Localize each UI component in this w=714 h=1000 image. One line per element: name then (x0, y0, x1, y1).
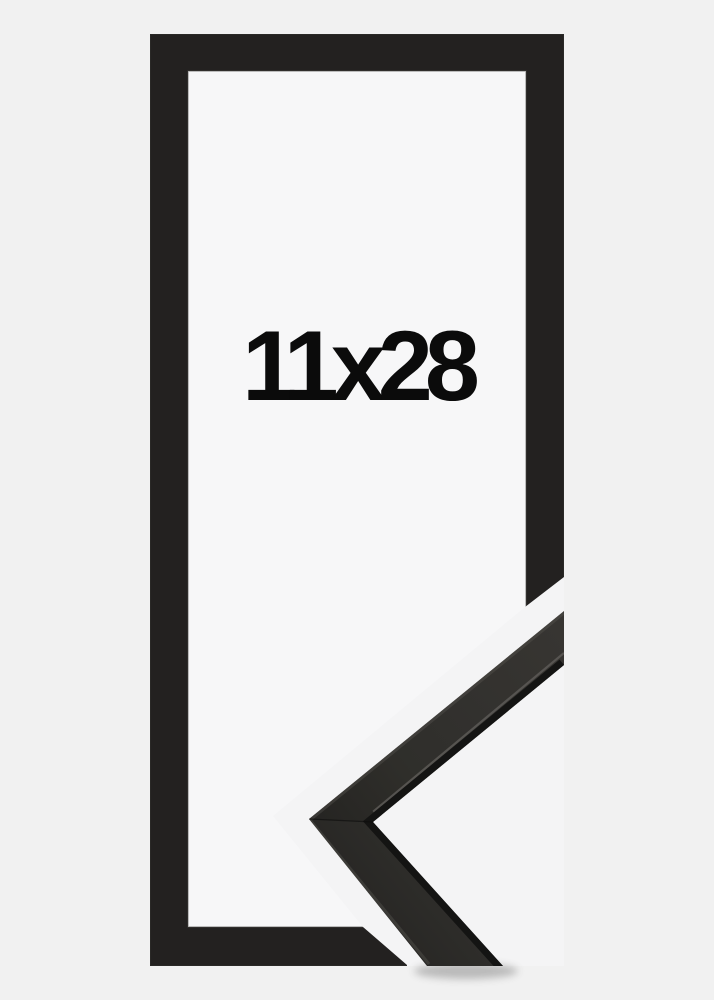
frame-product-photo: 11x28 (0, 0, 714, 1000)
size-label: 11x28 (242, 310, 478, 421)
product-photo-canvas: 11x28 (0, 0, 714, 1000)
